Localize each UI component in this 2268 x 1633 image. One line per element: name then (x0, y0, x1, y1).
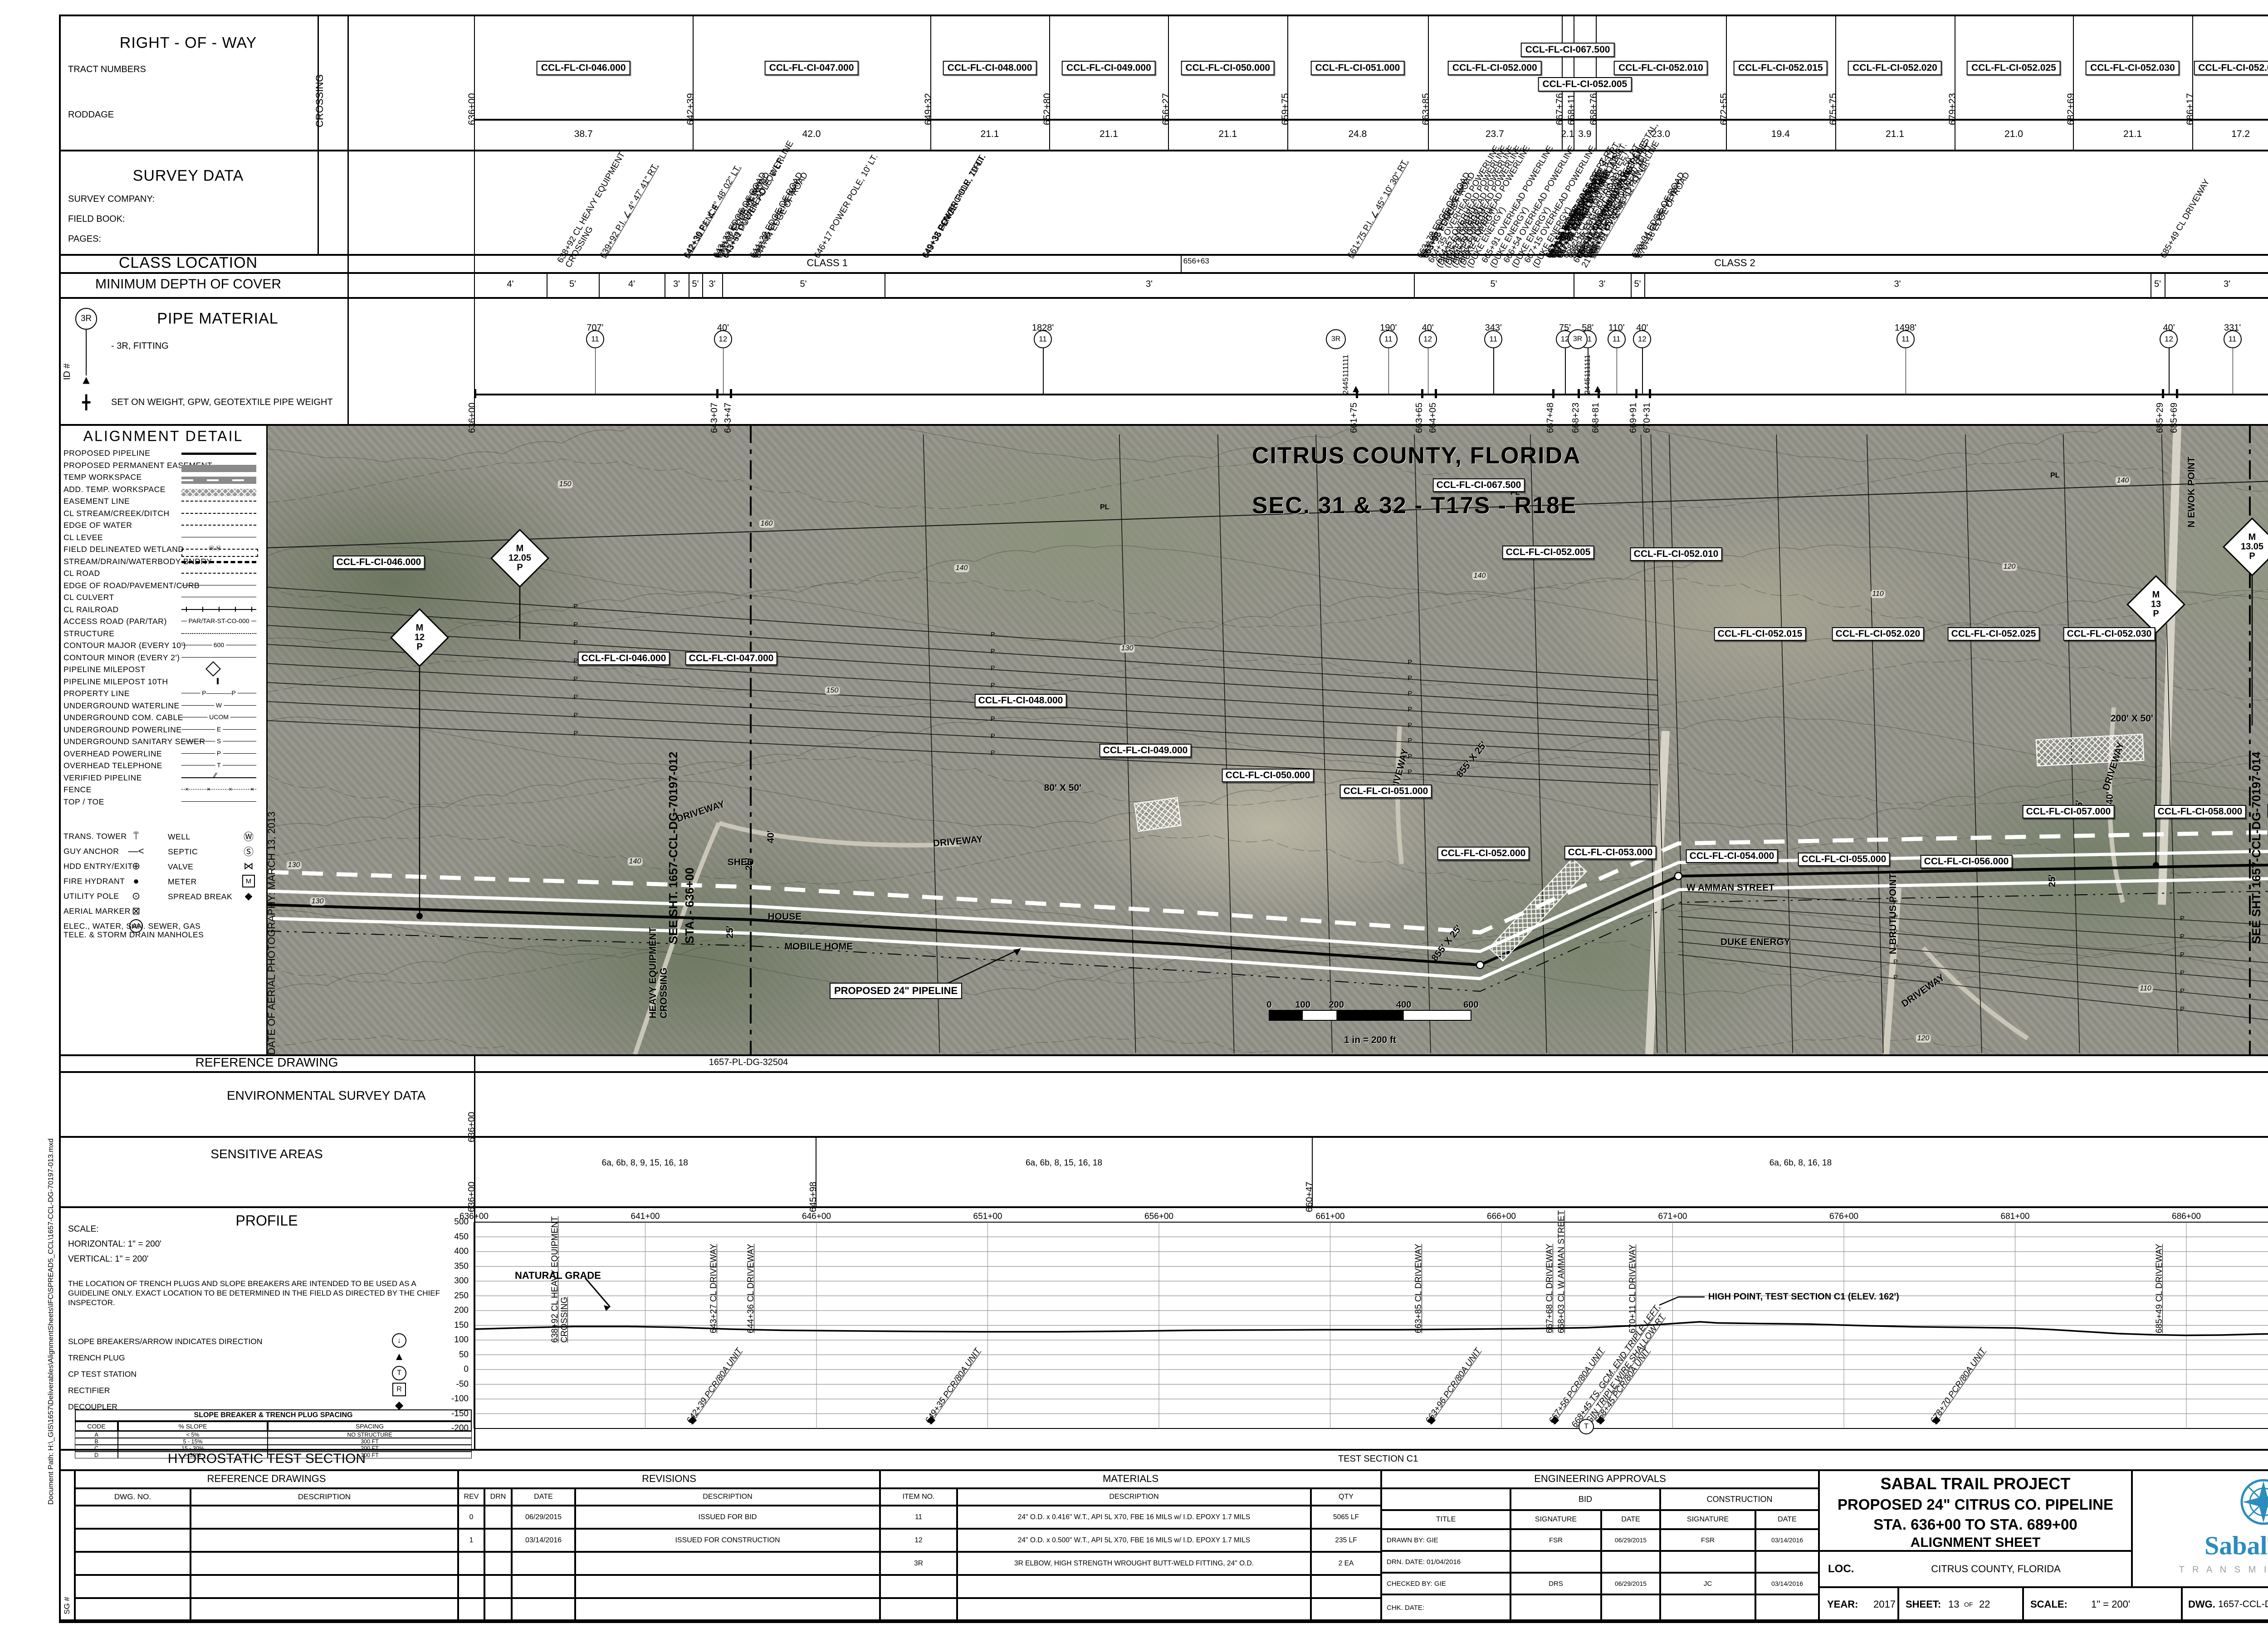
divider-line (59, 1621, 2268, 1623)
alignment-sheet: RIGHT - OF - WAYTRACT NUMBERSRODDAGECROS… (0, 0, 2268, 1633)
document-path-label: Document Path: H:\_GIS\1657\Deliverables… (47, 1139, 55, 1505)
drawing-frame (59, 15, 2268, 1621)
